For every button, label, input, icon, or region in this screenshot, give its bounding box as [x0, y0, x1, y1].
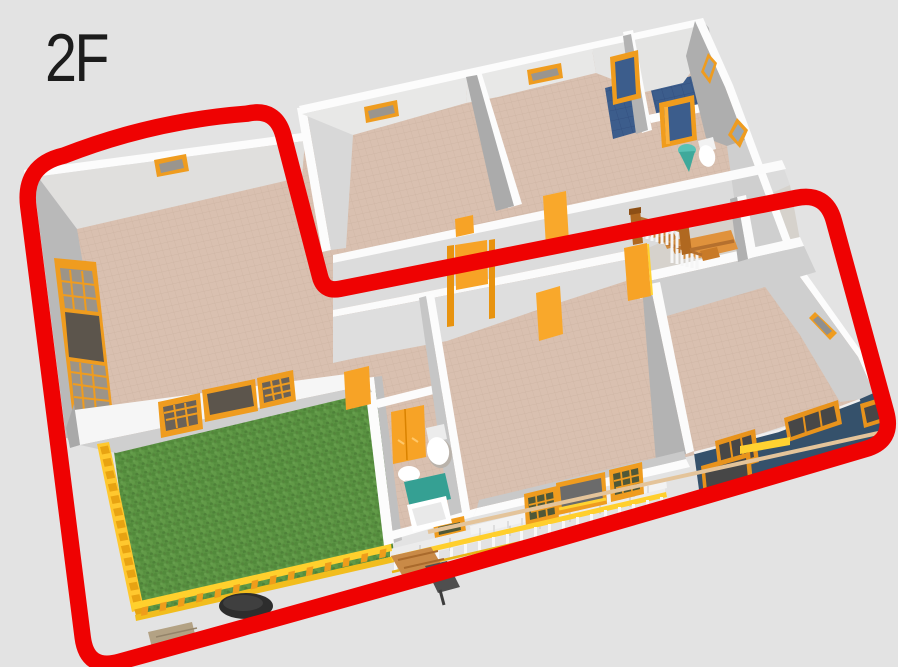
svg-text:2F: 2F: [45, 20, 107, 96]
